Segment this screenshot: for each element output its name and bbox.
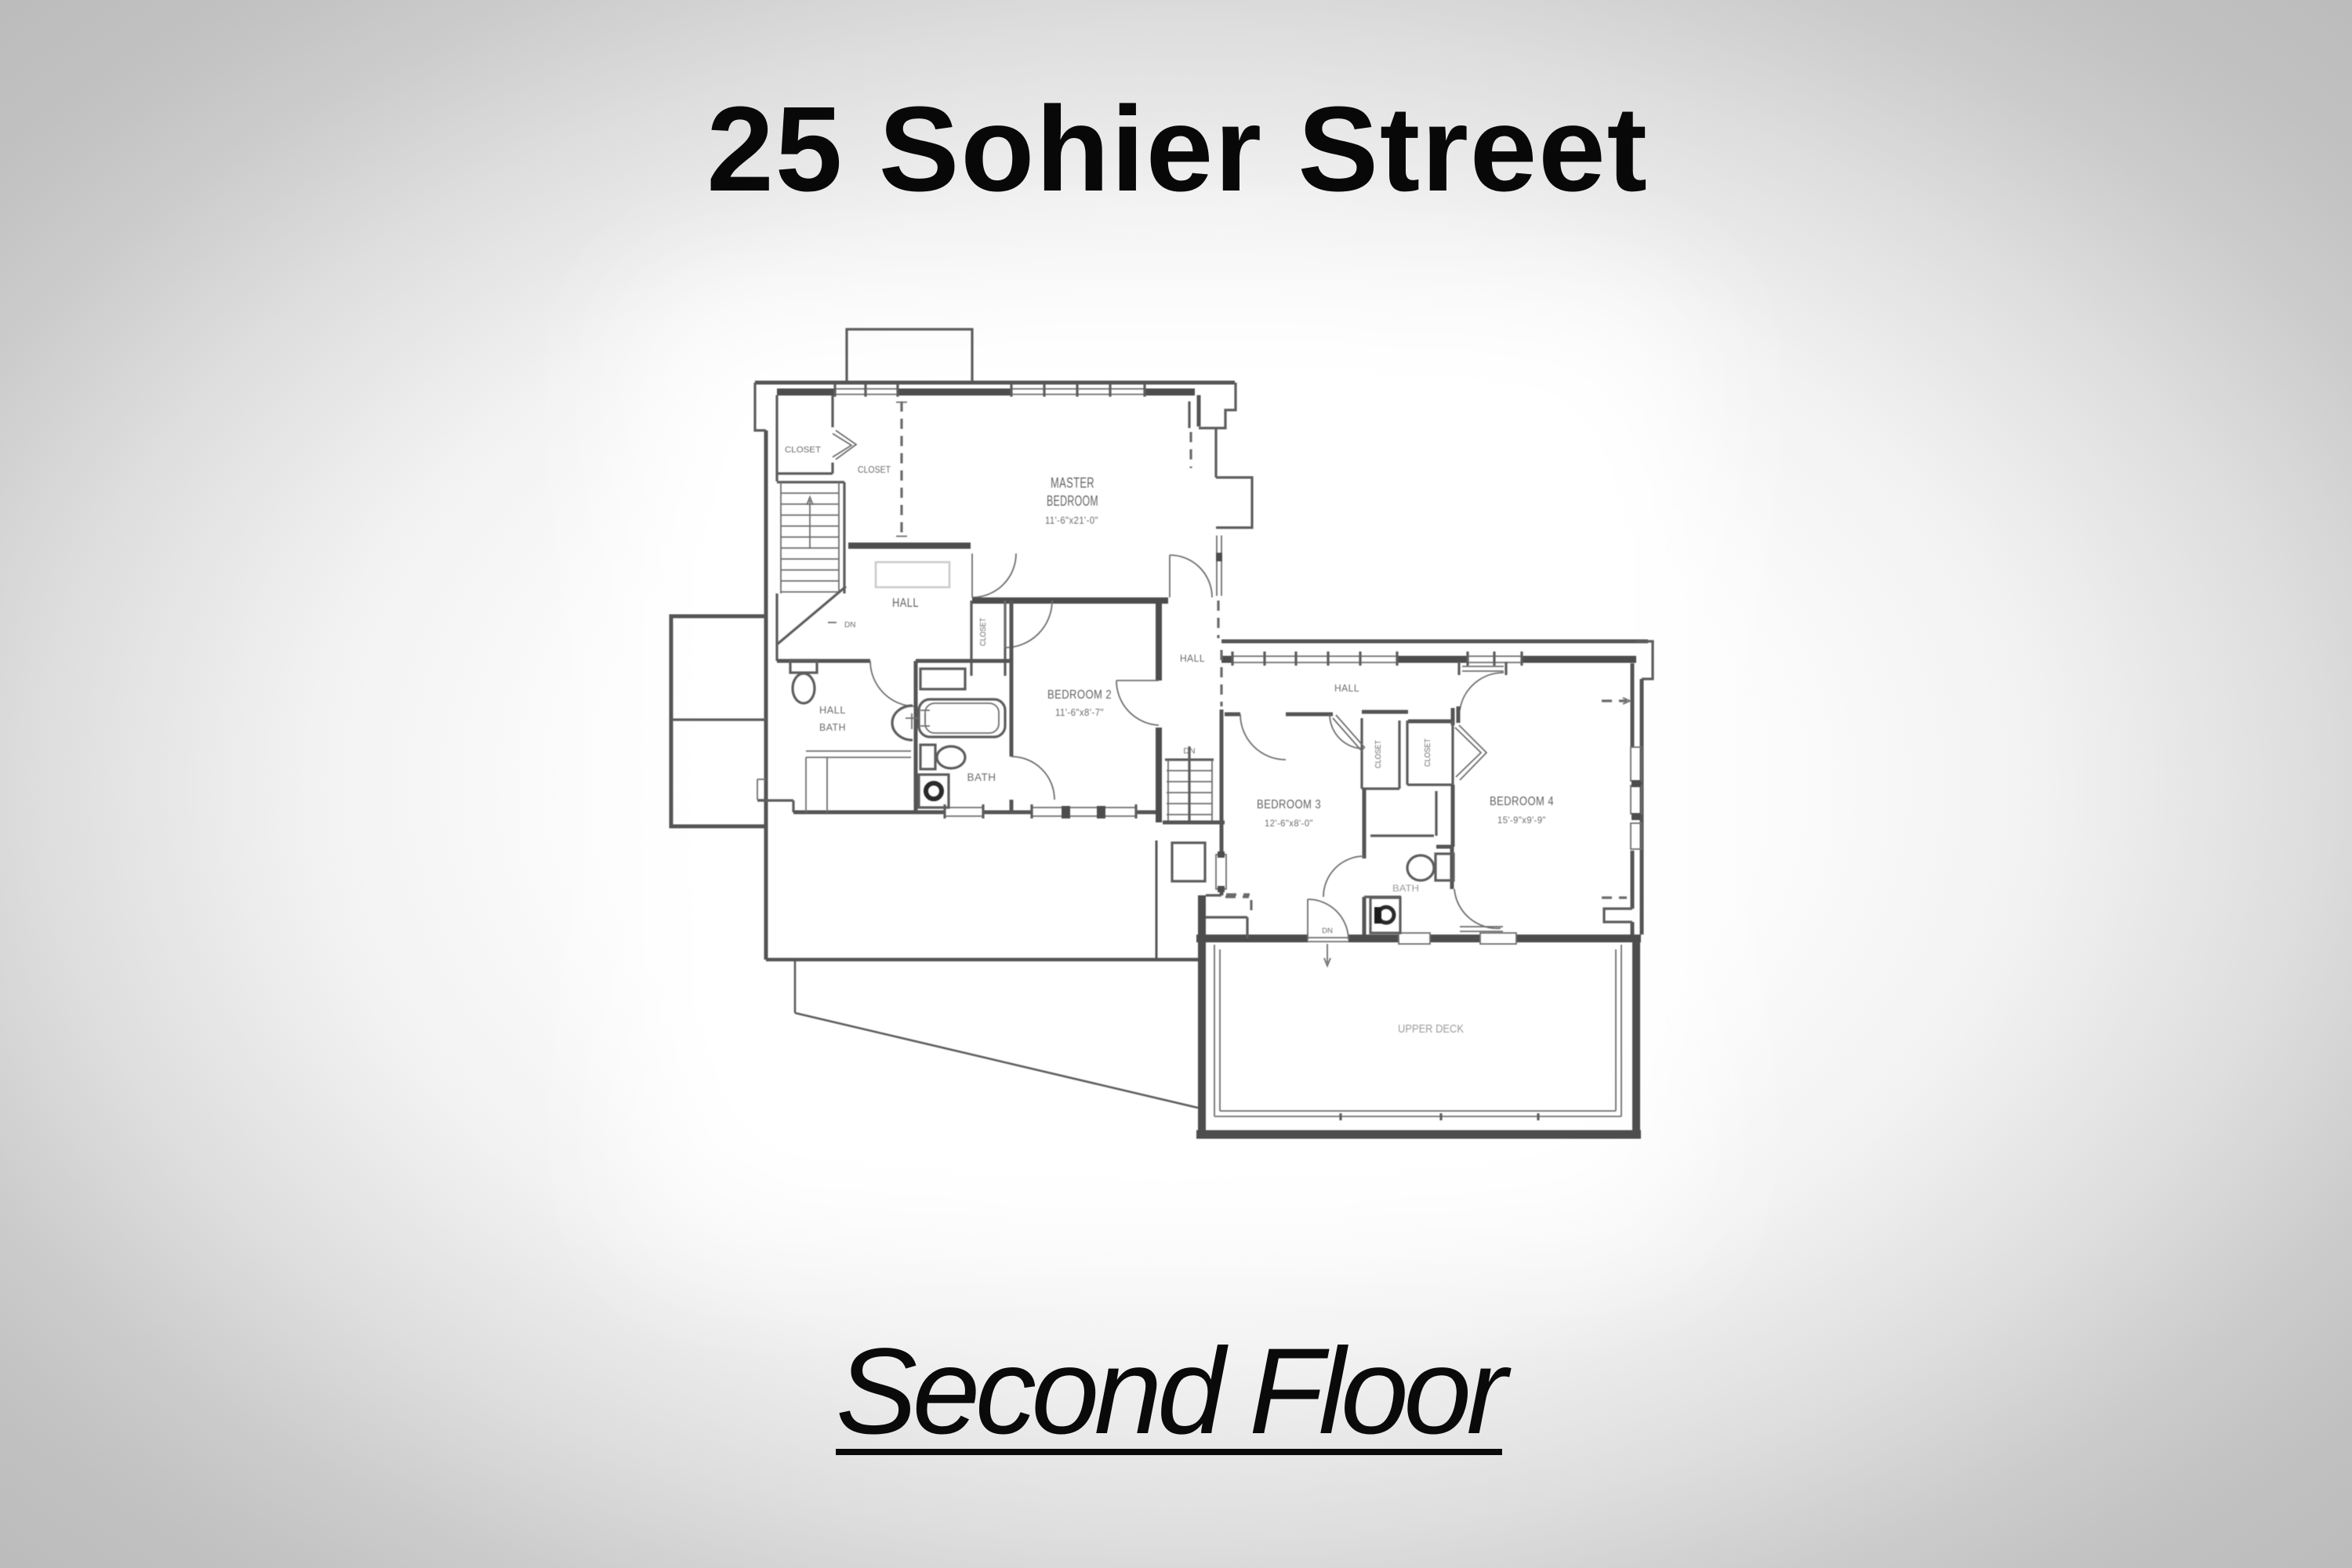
svg-text:CLOSET: CLOSET: [858, 464, 891, 475]
svg-text:BATH: BATH: [1392, 883, 1419, 894]
svg-text:BEDROOM 2: BEDROOM 2: [1047, 688, 1112, 702]
svg-text:DN: DN: [1183, 746, 1195, 756]
svg-text:CLOSET: CLOSET: [1374, 740, 1383, 768]
svg-text:DN: DN: [844, 621, 855, 630]
svg-text:15'-9"x9'-9": 15'-9"x9'-9": [1497, 815, 1546, 826]
svg-text:MASTER: MASTER: [1051, 475, 1094, 491]
svg-text:HALL: HALL: [1334, 682, 1359, 694]
svg-text:HALL: HALL: [819, 705, 846, 716]
svg-text:11'-6"x8'-7": 11'-6"x8'-7": [1055, 707, 1104, 718]
svg-text:HALL: HALL: [1180, 652, 1205, 664]
svg-text:CLOSET: CLOSET: [978, 618, 988, 646]
svg-text:DN: DN: [1322, 927, 1333, 935]
svg-text:CLOSET: CLOSET: [1423, 739, 1432, 767]
svg-text:11'-6"x21'-0": 11'-6"x21'-0": [1045, 515, 1098, 526]
svg-text:BEDROOM 3: BEDROOM 3: [1257, 798, 1321, 811]
svg-text:UPPER DECK: UPPER DECK: [1398, 1022, 1464, 1036]
svg-text:12'-6"x8'-0": 12'-6"x8'-0": [1265, 818, 1313, 829]
svg-text:BATH: BATH: [819, 722, 846, 733]
svg-text:HALL: HALL: [892, 597, 919, 610]
svg-text:BATH: BATH: [967, 771, 996, 783]
svg-text:BEDROOM 4: BEDROOM 4: [1490, 795, 1554, 808]
svg-text:CLOSET: CLOSET: [785, 445, 821, 455]
svg-text:BEDROOM: BEDROOM: [1047, 493, 1098, 509]
